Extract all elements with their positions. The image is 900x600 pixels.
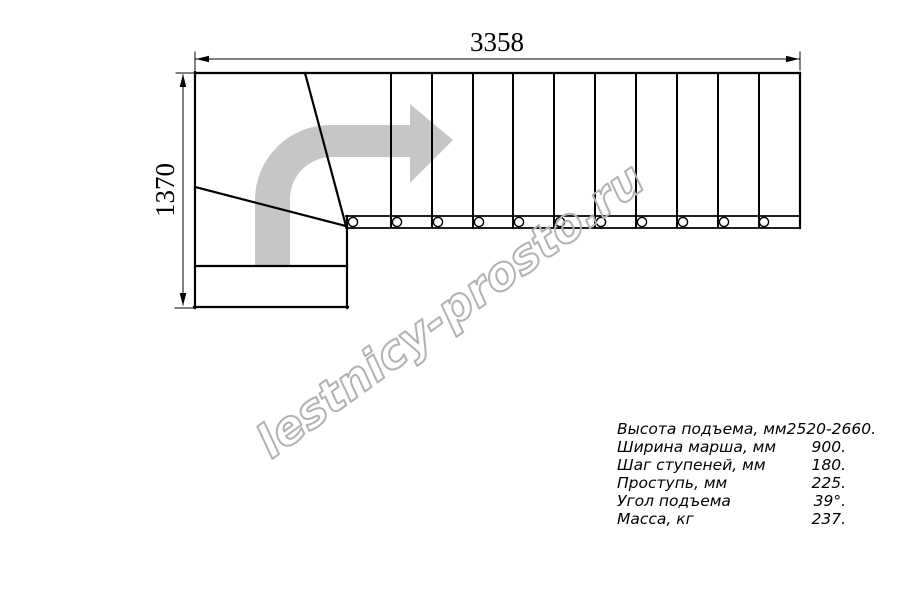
dimension-width: 3358 xyxy=(195,27,800,70)
spec-value: 237. xyxy=(811,510,846,528)
staircase-drawing-canvas: 3358 1370 lestnicy-prosto.ru Высота подъ… xyxy=(0,0,900,600)
spec-label: Угол подъема xyxy=(617,492,731,510)
spec-value: 900. xyxy=(811,438,846,456)
height-dim-label: 1370 xyxy=(150,163,180,217)
spec-value: 39°. xyxy=(814,492,846,510)
spec-label: Высота подъема, мм xyxy=(617,420,787,438)
width-dim-arrow-right xyxy=(786,56,799,63)
spec-label: Проступь, мм xyxy=(617,474,727,492)
baluster-circle xyxy=(759,217,768,226)
spec-value: 180. xyxy=(811,456,846,474)
width-dim-label: 3358 xyxy=(470,27,524,57)
spec-row-height: Высота подъема, мм 2520-2660. xyxy=(617,420,846,438)
spec-value: 225. xyxy=(811,474,846,492)
spec-label: Масса, кг xyxy=(617,510,694,528)
dimension-height: 1370 xyxy=(150,73,195,308)
spec-row-tread-depth: Проступь, мм 225. xyxy=(617,474,846,492)
watermark: lestnicy-prosto.ru xyxy=(246,151,654,468)
spec-label: Шаг ступеней, мм xyxy=(617,456,766,474)
baluster-circle xyxy=(433,217,442,226)
width-dim-arrow-left xyxy=(196,56,209,63)
baluster-circle xyxy=(392,217,401,226)
spec-label: Ширина марша, мм xyxy=(617,438,776,456)
specs-table: Высота подъема, мм 2520-2660. Ширина мар… xyxy=(617,420,846,528)
spec-row-mass: Масса, кг 237. xyxy=(617,510,846,528)
baluster-circle xyxy=(637,217,646,226)
height-dim-arrow-bottom xyxy=(180,293,187,306)
baluster-circle xyxy=(474,217,483,226)
baluster-circle xyxy=(678,217,687,226)
spec-row-flight-width: Ширина марша, мм 900. xyxy=(617,438,846,456)
baluster-circle xyxy=(719,217,728,226)
spec-row-step-rise: Шаг ступеней, мм 180. xyxy=(617,456,846,474)
spec-row-angle: Угол подъема 39°. xyxy=(617,492,846,510)
baluster-circle xyxy=(348,217,357,226)
direction-arrow-shape xyxy=(255,104,453,266)
height-dim-arrow-top xyxy=(180,74,187,87)
direction-arrow xyxy=(255,104,453,266)
spec-value: 2520-2660. xyxy=(787,420,876,438)
